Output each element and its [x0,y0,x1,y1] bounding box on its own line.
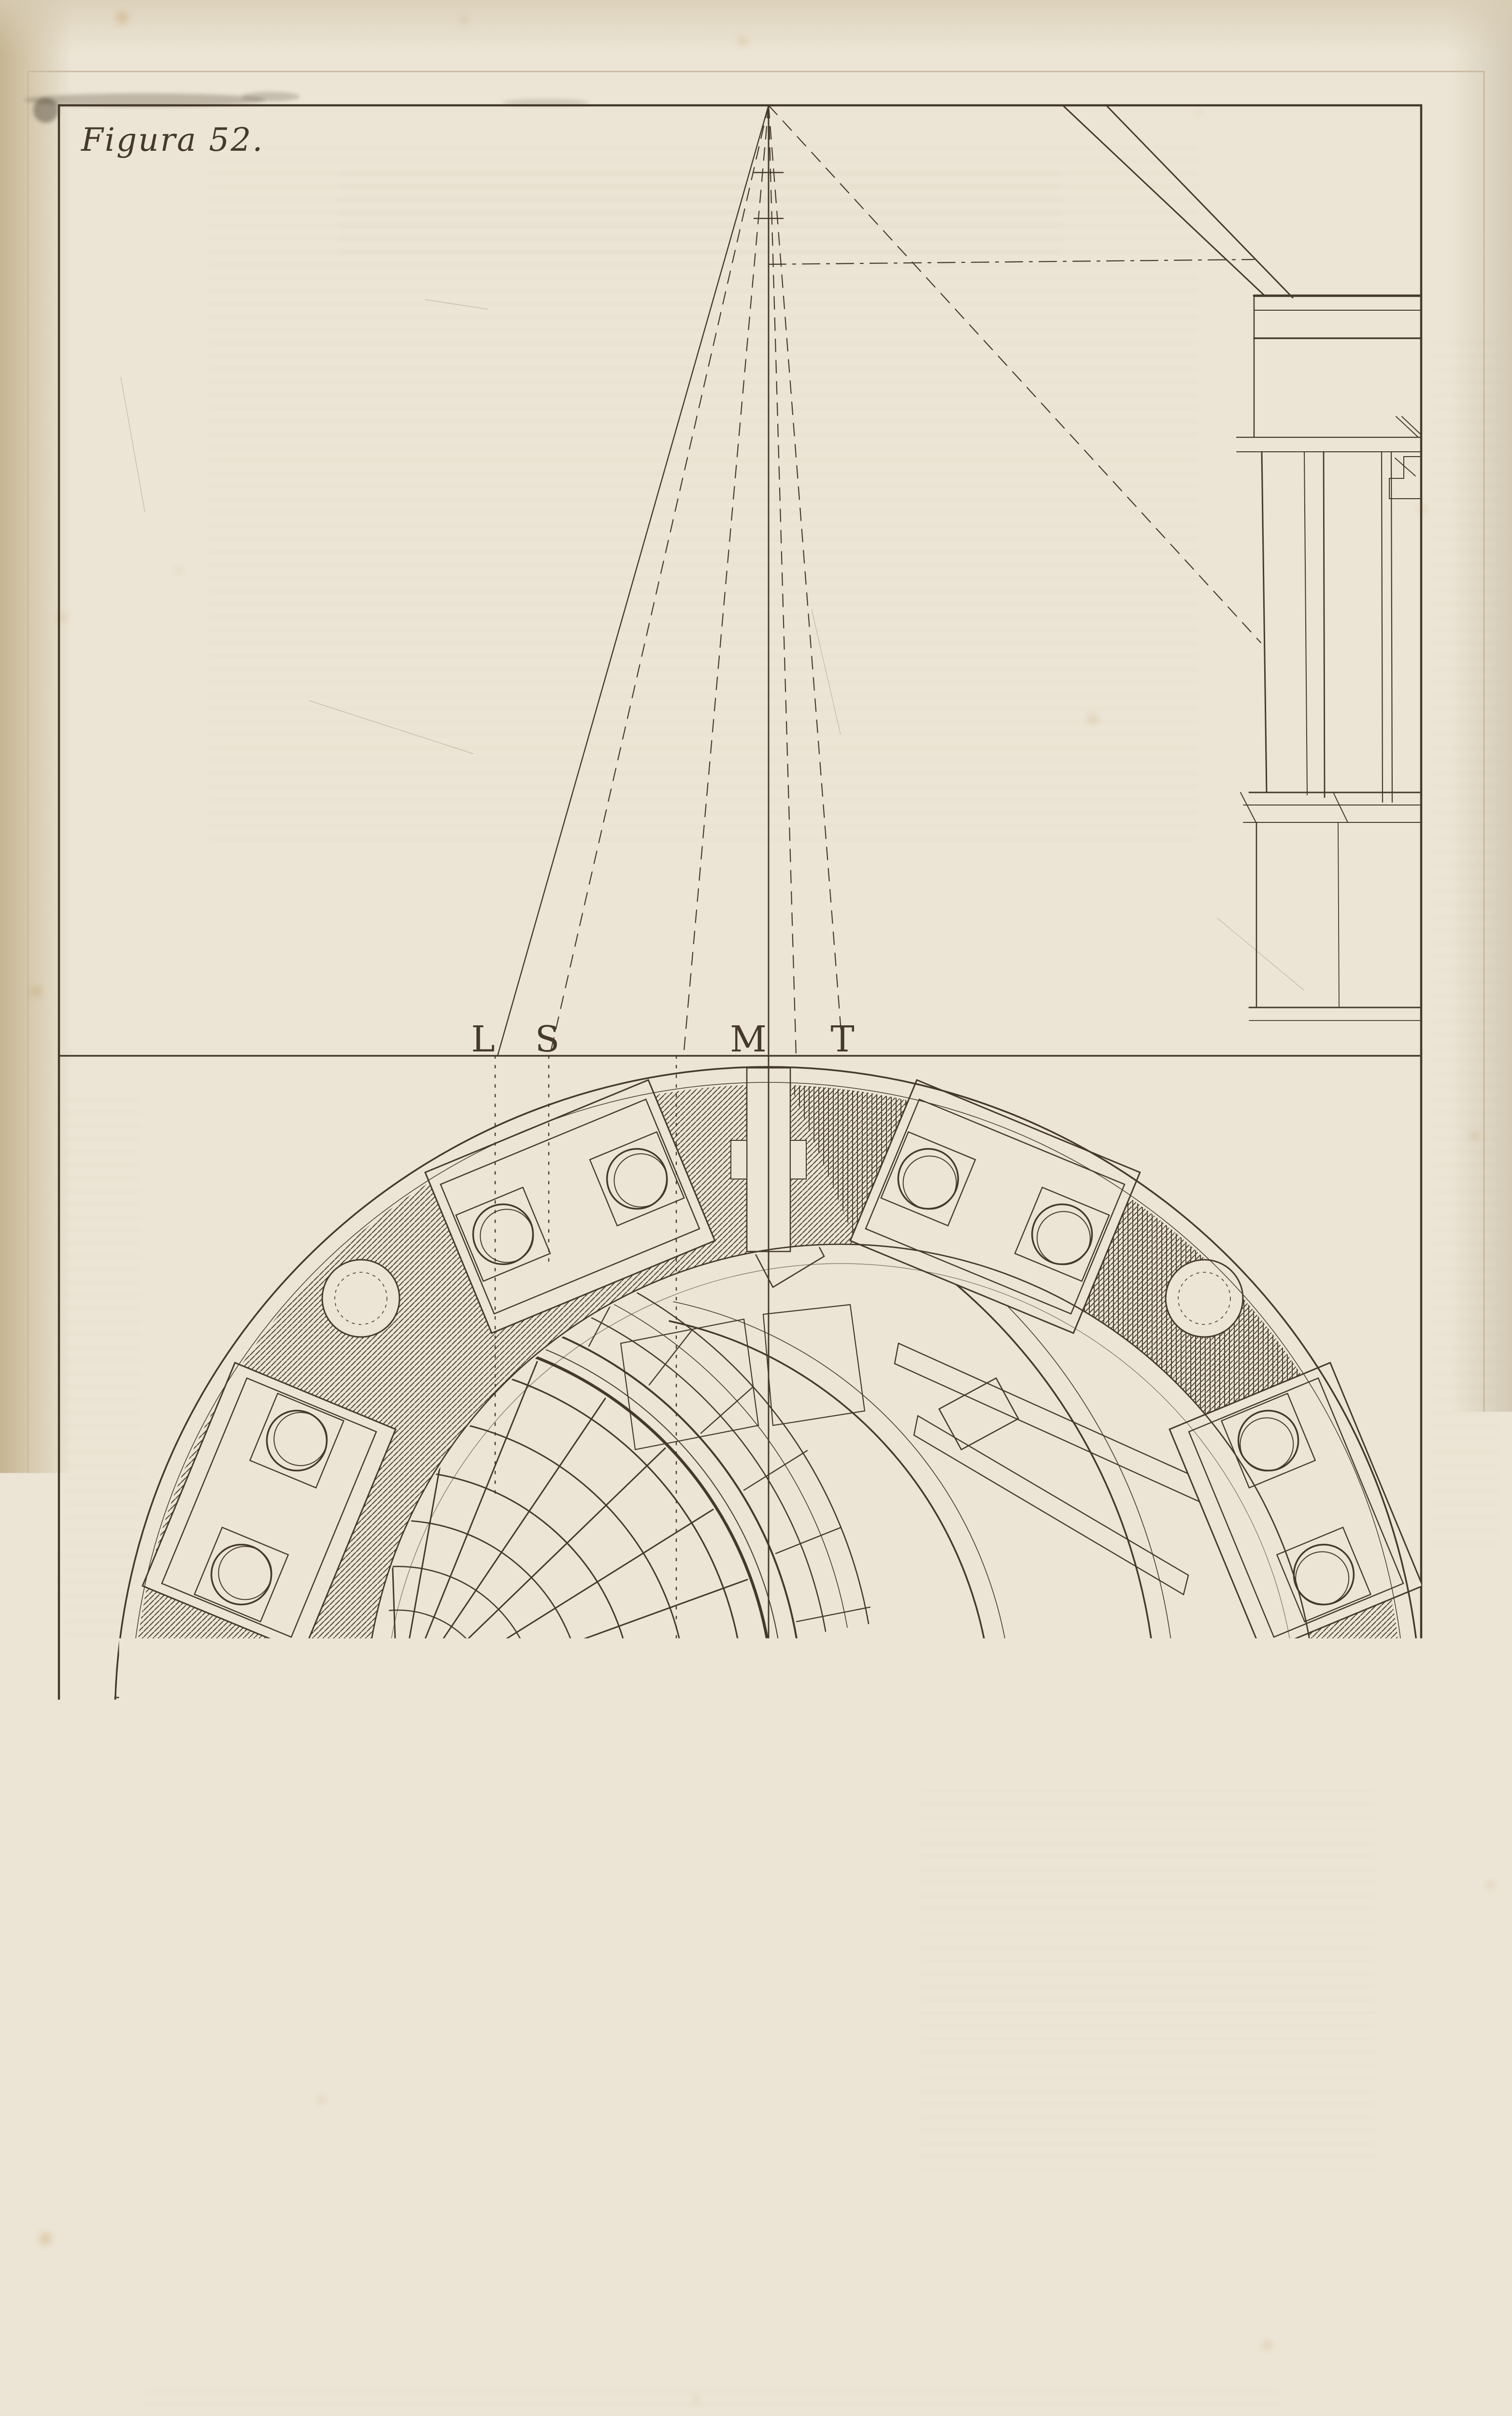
label-S: S [535,1019,560,1060]
label-L: L [471,1019,495,1060]
figure-label: Figura 52. [81,121,264,158]
label-T: T [830,1019,854,1060]
page: { "plate": { "figure_label": "Figura 52.… [0,0,1512,2416]
label-M: M [730,1019,767,1060]
engraved-plate: Figura 52. [0,0,1512,2416]
